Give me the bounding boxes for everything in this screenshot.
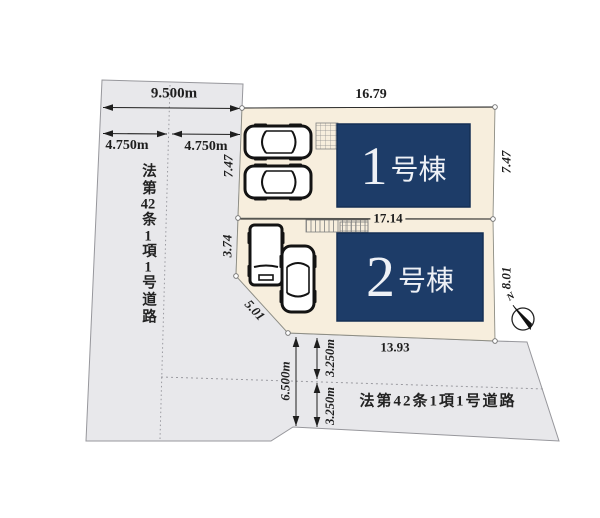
- van-icon: [248, 225, 285, 285]
- car-icon: [245, 164, 311, 201]
- dim-lot1-left: 7.47: [222, 155, 235, 178]
- dimension-line-4750-left: [103, 134, 167, 135]
- building2-label: 2号棟: [337, 233, 483, 321]
- compass-icon: [504, 299, 539, 336]
- site-plan: 9.500m 4.750m 4.750m 法第42条1項1号道路 16.79 7…: [0, 0, 600, 518]
- building1-label: 1号棟: [337, 124, 470, 207]
- dim-lot1-right: 7.47: [500, 151, 513, 174]
- dim-road-bottom-half-1: 3.250m: [324, 339, 337, 377]
- building1-suffix: 号棟: [390, 147, 446, 185]
- dim-road-bottom-total: 6.500m: [279, 361, 292, 400]
- dim-road-left-total: 9.500m: [151, 87, 197, 102]
- car-icon: [280, 246, 317, 312]
- dim-lot2-left: 3.74: [221, 235, 234, 258]
- car-icon: [245, 124, 311, 161]
- dim-road-left-half-2: 4.750m: [184, 140, 227, 154]
- road-left-name: 法第42条1項1号道路: [138, 163, 159, 326]
- dim-road-left-half-1: 4.750m: [105, 139, 148, 153]
- porch-hatch-lot1: [316, 123, 338, 149]
- dim-lot2-bottom: 13.93: [380, 341, 409, 354]
- building1-number: 1: [360, 139, 387, 193]
- dim-lot1-top: 16.79: [355, 88, 387, 102]
- dim-lot2-right: 8.01: [500, 267, 513, 290]
- road-bottom-name: 法第42条1項1号道路: [359, 390, 516, 411]
- site-plan-drawing: [0, 0, 600, 518]
- building2-number: 2: [366, 248, 395, 306]
- dim-road-bottom-half-2: 3.250m: [324, 387, 337, 425]
- building2-suffix: 号棟: [398, 258, 454, 296]
- dim-lot-boundary: 17.14: [370, 212, 405, 225]
- dimension-line-4750-right: [172, 134, 240, 135]
